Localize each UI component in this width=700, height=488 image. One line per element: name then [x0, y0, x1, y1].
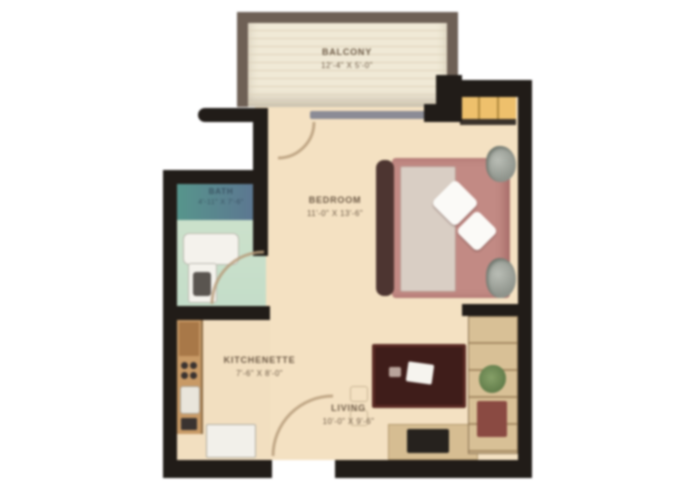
- bath-label: BATH 4'-11" X 7'-6": [180, 186, 262, 209]
- bedroom-dims: 11'-0" X 13'-6": [265, 208, 405, 220]
- kitchenette-label: KITCHENETTE 7'-6" X 8'-0": [197, 354, 322, 380]
- bath-name: BATH: [209, 187, 234, 196]
- floor-plan-canvas: BALCONY 12'-4" X 5'-0" BEDROOM 11'-0" X …: [0, 0, 700, 488]
- kitchenette-name: KITCHENETTE: [224, 355, 296, 365]
- balcony-door-arc: [278, 122, 314, 158]
- living-name: LIVING: [331, 403, 366, 413]
- bathroom-door-arc: [212, 252, 264, 304]
- kitchenette-dims: 7'-6" X 8'-0": [197, 368, 322, 380]
- balcony-name: BALCONY: [322, 47, 372, 57]
- living-dims: 10'-0" X 9'-6": [286, 416, 411, 428]
- bath-dims: 4'-11" X 7'-6": [180, 198, 262, 209]
- bedroom-name: BEDROOM: [309, 195, 362, 205]
- bedroom-label: BEDROOM 11'-0" X 13'-6": [265, 194, 405, 220]
- balcony-dims: 12'-4" X 5'-0": [277, 60, 417, 72]
- balcony-label: BALCONY 12'-4" X 5'-0": [277, 46, 417, 72]
- living-label: LIVING 10'-0" X 9'-6": [286, 402, 411, 428]
- floor-plan: BALCONY 12'-4" X 5'-0" BEDROOM 11'-0" X …: [0, 0, 700, 488]
